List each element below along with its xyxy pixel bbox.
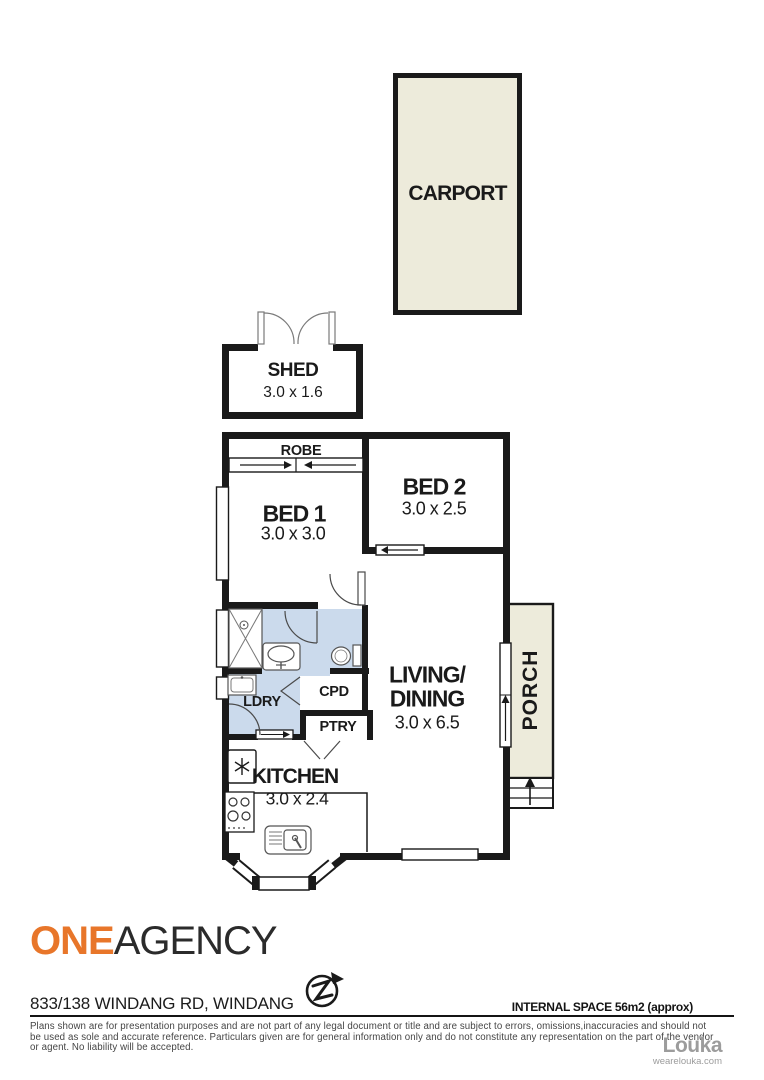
louka-logo-name: Louka [653,1036,722,1056]
footer-divider [30,1015,734,1017]
shed-dims: 3.0 x 1.6 [263,384,322,402]
living-sliding-door [500,643,511,747]
disclaimer-line-3: or agent. No liability will be accepted. [30,1043,713,1054]
agency-logo-one: ONE [30,919,114,963]
laundry-sliding-door [256,730,293,739]
shower [229,609,262,668]
door-arc-bed1 [330,572,365,605]
agency-logo-agency: AGENCY [114,919,277,963]
bed2-label: BED 2 [403,474,466,501]
stove [225,792,254,832]
laundry-label: LDRY [243,694,281,710]
shed-label: SHED [268,360,319,382]
shed-doors [258,312,335,344]
cupboard-label: CPD [319,684,349,700]
bed2-sliding-door [376,545,424,555]
agency-logo: ONEAGENCY [30,920,277,971]
living-label-line2: DINING [390,686,465,713]
kitchen-dims: 3.0 x 2.4 [266,789,329,810]
floorplan-canvas [0,0,764,1080]
louka-logo: Louka wearelouka.com [653,1036,722,1067]
porch-label: PORCH [519,650,543,731]
disclaimer-text: Plans shown are for presentation purpose… [30,1022,713,1054]
robe-sliding-doors [229,458,363,472]
vanity-basin [263,643,300,670]
living-dims: 3.0 x 6.5 [395,713,460,734]
disclaimer-line-1: Plans shown are for presentation purpose… [30,1022,713,1033]
bay-window [226,856,346,890]
living-label-line1: LIVING/ [389,662,465,689]
bed2-dims: 3.0 x 2.5 [402,499,467,520]
robe-label: ROBE [281,443,322,459]
laundry-tub [228,675,256,695]
floorplan-page: CARPORT [0,0,764,1080]
north-arrow-icon [300,966,346,1012]
property-address: 833/138 WINDANG RD, WINDANG [30,994,294,1014]
bed1-dims: 3.0 x 3.0 [261,524,326,545]
pantry-double-doors [304,741,340,759]
toilet [332,645,362,666]
kitchen-sink [265,826,311,854]
pantry-label: PTRY [320,719,357,735]
kitchen-label: KITCHEN [252,765,338,789]
internal-space-note: INTERNAL SPACE 56m2 (approx) [512,1000,693,1014]
louka-logo-site: wearelouka.com [653,1056,722,1067]
